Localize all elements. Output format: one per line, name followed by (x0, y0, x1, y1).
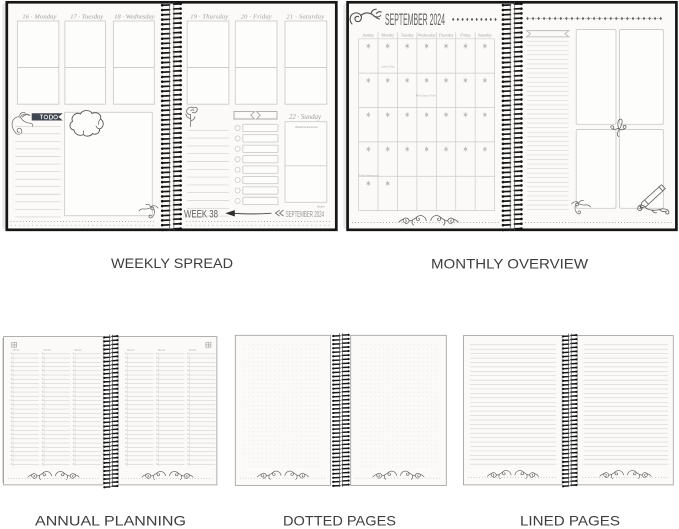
svg-text:19 · Thursday: 19 · Thursday (190, 13, 228, 20)
svg-text:18 · Wednesday: 18 · Wednesday (114, 13, 155, 20)
svg-text:Wednesday: Wednesday (418, 33, 436, 37)
svg-text:Notes: Notes (317, 205, 325, 209)
svg-text:SEPTEMBER 2024: SEPTEMBER 2024 (286, 209, 324, 219)
svg-text:Month: Month (158, 348, 166, 352)
svg-text:21 · Saturday: 21 · Saturday (286, 13, 324, 20)
svg-text:Saturday: Saturday (478, 33, 492, 37)
svg-text:DOTTED PAGES: DOTTED PAGES (283, 512, 396, 528)
svg-text:Labor Day: Labor Day (381, 65, 395, 69)
svg-text:20 · Friday: 20 · Friday (241, 13, 272, 20)
svg-text:Month: Month (75, 348, 83, 352)
svg-text:WEEKLY SPREAD: WEEKLY SPREAD (111, 255, 233, 271)
svg-text:Sunday: Sunday (363, 33, 375, 37)
svg-text:ANNUAL PLANNING: ANNUAL PLANNING (35, 512, 186, 528)
svg-text:Rosh Hashanah: Rosh Hashanah (358, 174, 379, 178)
svg-text:Weekend Expenses: Weekend Expenses (295, 125, 319, 129)
svg-text:Month: Month (13, 348, 21, 352)
svg-text:LINED PAGES: LINED PAGES (520, 512, 620, 528)
svg-text:Friday: Friday (459, 33, 471, 37)
svg-text:Monday: Monday (380, 33, 394, 37)
svg-text:SEPTEMBER 2024: SEPTEMBER 2024 (385, 11, 445, 29)
svg-text:Tuesday: Tuesday (401, 33, 414, 37)
svg-text:Month: Month (44, 348, 52, 352)
svg-text:MONTHLY OVERVIEW: MONTHLY OVERVIEW (431, 255, 589, 271)
svg-text:WEEK 38: WEEK 38 (184, 208, 218, 220)
svg-text:Month: Month (127, 348, 135, 352)
svg-text:22 · Sunday: 22 · Sunday (289, 114, 322, 121)
svg-text:First Day of Fall: First Day of Fall (416, 94, 436, 98)
svg-text:16 · Monday: 16 · Monday (22, 13, 56, 20)
svg-text:17 · Tuesday: 17 · Tuesday (70, 13, 103, 20)
svg-text:Month: Month (189, 348, 197, 352)
svg-text:Thursday: Thursday (439, 33, 454, 37)
